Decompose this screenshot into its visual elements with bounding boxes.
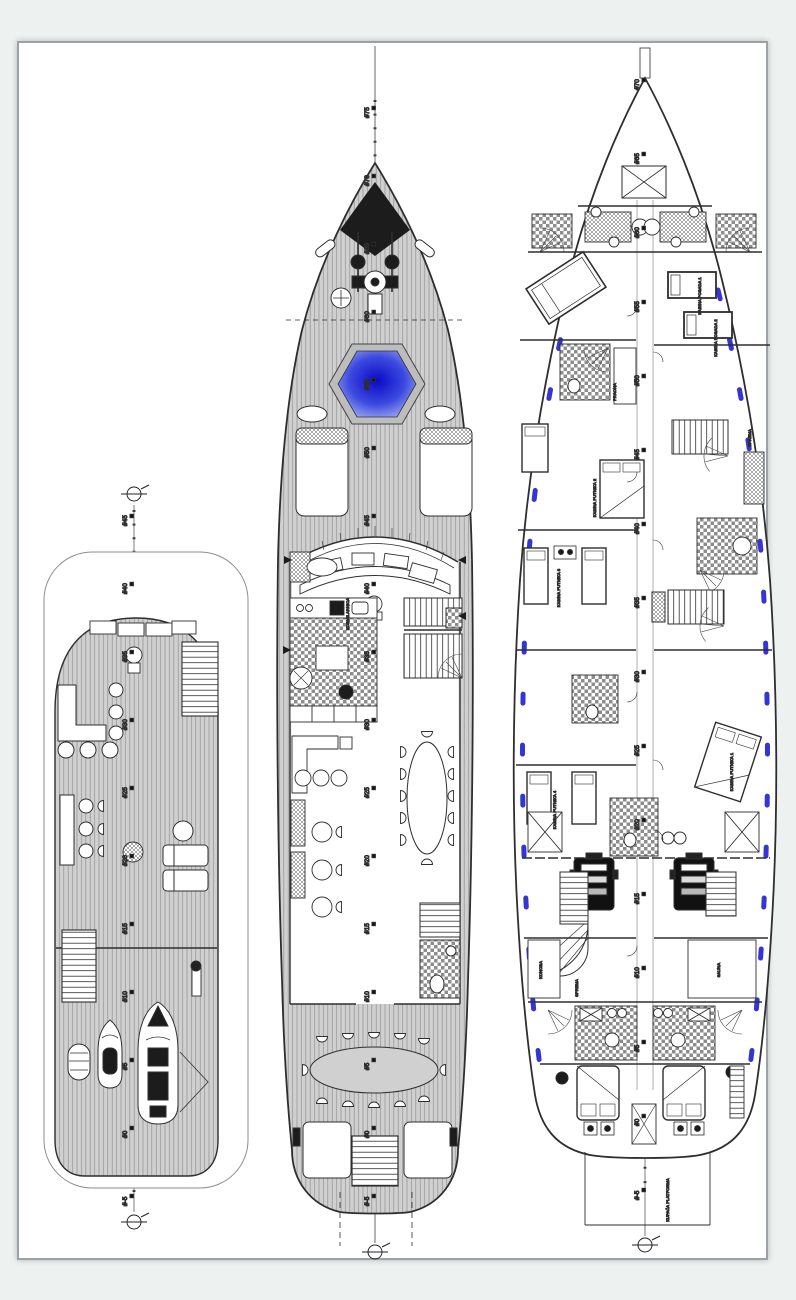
svg-text:SAUNA: SAUNA <box>716 963 721 978</box>
svg-text:#25: #25 <box>122 787 129 798</box>
svg-text:KUPAĆA PLATFORMA: KUPAĆA PLATFORMA <box>665 1178 670 1222</box>
svg-text:#70: #70 <box>634 79 641 90</box>
svg-text:#5: #5 <box>364 1062 371 1070</box>
svg-text:#30: #30 <box>364 719 371 730</box>
dining-table <box>407 742 447 854</box>
svg-text:SPREMA: SPREMA <box>747 429 752 447</box>
transom-ladder <box>730 1066 744 1118</box>
bowsprit <box>640 48 650 78</box>
svg-text:#25: #25 <box>364 787 371 798</box>
svg-text:#55: #55 <box>634 301 641 312</box>
svg-text:#20: #20 <box>364 855 371 866</box>
svg-text:#45: #45 <box>122 515 129 526</box>
forward-bath-port <box>560 344 610 400</box>
yacht-deck-plans: #45#40#35#30#25#20#15#10#5#0#-5 <box>0 0 796 1300</box>
svg-text:KABINA PUTNIKA 2: KABINA PUTNIKA 2 <box>592 478 597 517</box>
room-labels-main: KORMILARNICA <box>345 598 350 630</box>
svg-text:#0: #0 <box>634 1118 641 1126</box>
svg-text:KABINA PUTNIKA 3: KABINA PUTNIKA 3 <box>556 568 561 607</box>
svg-text:SPREMA: SPREMA <box>574 979 579 997</box>
stairs-sundeck-aft <box>62 930 96 1002</box>
datum-mark <box>121 485 149 501</box>
svg-text:KABINA PUTNIKA 1: KABINA PUTNIKA 1 <box>729 752 734 791</box>
svg-text:#50: #50 <box>364 447 371 458</box>
chain-locker <box>622 166 666 198</box>
tender-crane <box>191 961 201 996</box>
svg-text:#70: #70 <box>364 175 371 186</box>
svg-text:#25: #25 <box>634 745 641 756</box>
svg-text:#5: #5 <box>122 1062 129 1070</box>
life-raft <box>68 1044 90 1080</box>
svg-text:#40: #40 <box>122 583 129 594</box>
svg-text:#40: #40 <box>634 523 641 534</box>
svg-text:#0: #0 <box>122 1130 129 1138</box>
svg-text:#0: #0 <box>364 1130 371 1138</box>
svg-text:#50: #50 <box>634 375 641 386</box>
svg-text:#15: #15 <box>364 923 371 934</box>
svg-text:#75: #75 <box>364 107 371 118</box>
engine-room-ladder <box>706 872 736 916</box>
svg-text:#65: #65 <box>634 153 641 164</box>
round-table <box>173 821 193 841</box>
gate-port <box>293 1128 300 1146</box>
svg-text:#55: #55 <box>364 379 371 390</box>
datum-mark <box>362 1243 390 1259</box>
main-deck-plan: #75#70#65#60#55#50#45#40#35#30#25#20#15#… <box>277 46 473 1259</box>
lower-deck-plan: #70#65#60#55#50#45#40#35#30#25#20#15#10#… <box>514 48 777 1252</box>
svg-text:#20: #20 <box>634 819 641 830</box>
gate-starboard <box>450 1128 457 1146</box>
svg-text:#30: #30 <box>122 719 129 730</box>
wardrobe <box>744 452 764 504</box>
svg-text:#40: #40 <box>364 583 371 594</box>
svg-text:#15: #15 <box>634 893 641 904</box>
sun-deck-plan: #45#40#35#30#25#20#15#10#5#0#-5 <box>44 485 248 1229</box>
svg-text:#10: #10 <box>634 967 641 978</box>
svg-text:#10: #10 <box>122 991 129 1002</box>
svg-text:KABINA PUTNIKA 4: KABINA PUTNIKA 4 <box>552 790 557 829</box>
cushion <box>297 406 327 422</box>
cushion <box>425 406 455 422</box>
day-head <box>420 903 460 998</box>
transom-stairs <box>352 1136 398 1186</box>
laundry-room <box>614 348 636 404</box>
svg-text:#35: #35 <box>634 597 641 608</box>
svg-text:#35: #35 <box>364 651 371 662</box>
svg-text:PRAONA: PRAONA <box>612 383 617 401</box>
svg-text:#45: #45 <box>634 449 641 460</box>
svg-text:KABINA POSADA 1: KABINA POSADA 1 <box>697 277 702 315</box>
store-room <box>528 940 560 998</box>
svg-text:#65: #65 <box>364 243 371 254</box>
svg-text:#45: #45 <box>364 515 371 526</box>
svg-text:#-5: #-5 <box>634 1190 641 1200</box>
datum-mark <box>632 1236 660 1252</box>
svg-text:KABINA POSADA 2: KABINA POSADA 2 <box>713 319 718 357</box>
sauna-room <box>688 940 756 998</box>
svg-text:#-5: #-5 <box>122 1196 129 1206</box>
svg-text:#5: #5 <box>634 1044 641 1052</box>
svg-text:#60: #60 <box>364 311 371 322</box>
svg-text:#60: #60 <box>634 227 641 238</box>
svg-text:#15: #15 <box>122 923 129 934</box>
page: { "page": { "background": "#edf2f0", "sh… <box>0 0 796 1300</box>
svg-text:#35: #35 <box>122 651 129 662</box>
svg-text:#-5: #-5 <box>364 1196 371 1206</box>
svg-text:#10: #10 <box>364 991 371 1002</box>
svg-text:#20: #20 <box>122 855 129 866</box>
datum-mark <box>121 1213 149 1229</box>
svg-text:KONOBA: KONOBA <box>538 961 543 979</box>
jet-ski <box>98 1020 122 1088</box>
svg-text:KORMILARNICA: KORMILARNICA <box>345 598 350 630</box>
svg-text:#30: #30 <box>634 671 641 682</box>
swim-platform <box>585 1152 710 1225</box>
stairs-main-mid <box>404 598 462 678</box>
stairs-sundeck-forward <box>182 642 218 716</box>
